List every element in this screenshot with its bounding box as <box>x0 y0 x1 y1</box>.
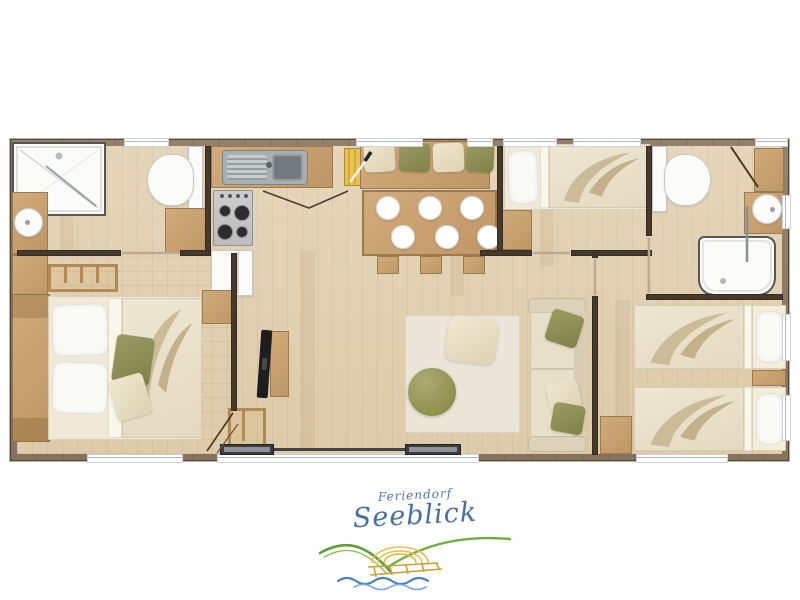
logo-lake-graphic <box>310 533 520 591</box>
door-panel-glass <box>224 447 270 452</box>
toilet-bowl <box>147 154 194 206</box>
basket-divider <box>242 411 245 441</box>
stool <box>377 256 399 274</box>
sofa-cushion <box>550 401 587 435</box>
wall-bedroom-left <box>17 250 121 256</box>
bed-pillow <box>756 311 783 363</box>
sheet-fold <box>744 305 752 369</box>
sheet-fold <box>540 146 549 208</box>
window <box>504 139 556 146</box>
fridge-door-line <box>237 252 239 294</box>
logo: Feriendorf Seeblick <box>300 488 530 588</box>
window <box>637 455 727 462</box>
basin-drain <box>770 207 775 212</box>
wall-bedroom-single <box>480 250 532 256</box>
bench-cushion <box>363 142 395 173</box>
sliding-door-panel <box>220 444 274 455</box>
twin-bed-top-duvet <box>634 305 744 369</box>
headboard-shelf <box>12 294 50 442</box>
bedroom-cabinet <box>500 210 532 250</box>
wardrobe <box>202 290 232 324</box>
towel-shelf <box>48 264 118 292</box>
twin-bedroom-cabinet <box>600 416 632 454</box>
shower-drain <box>720 278 726 284</box>
toilet-bowl <box>664 154 711 206</box>
duvet-leaf-motif <box>634 305 744 369</box>
bedside-nook <box>12 418 50 442</box>
floor-plank <box>300 250 315 450</box>
bed-pillow <box>51 361 109 415</box>
wall-twin-bedroom <box>592 253 598 258</box>
bench-cushion <box>399 142 431 172</box>
sink-drainer <box>227 155 267 180</box>
duvet-leaf-motif <box>549 146 649 208</box>
sheet-fold <box>744 387 752 451</box>
sliding-door-glass <box>218 455 478 462</box>
bench-cushion <box>433 142 465 172</box>
tv-stand <box>270 331 289 397</box>
wall-bedroom-left <box>180 250 211 256</box>
twin-bed-bottom-duvet <box>634 387 744 451</box>
wall-bathroom-right-south <box>646 294 783 300</box>
window <box>357 139 422 146</box>
shelf-divider <box>96 267 99 283</box>
window <box>468 139 492 146</box>
round-pouf <box>408 368 456 416</box>
door-panel-glass <box>409 447 457 452</box>
plate <box>376 196 400 220</box>
kitchen-sink-unit <box>222 150 308 185</box>
wall-bedroom-left-east <box>231 253 237 411</box>
sliding-door-panel <box>405 444 461 455</box>
bedside-nook <box>12 294 50 318</box>
duvet-leaf-motif <box>634 387 744 451</box>
plate <box>418 196 442 220</box>
window <box>574 139 640 146</box>
stool <box>463 256 485 274</box>
bed-pillow <box>756 393 783 445</box>
window <box>783 396 790 440</box>
shower-tray <box>698 236 776 296</box>
wall-bathroom-left <box>205 146 211 256</box>
bathroom-wall-cabinet <box>754 148 784 192</box>
floorplan-image: Feriendorf Seeblick <box>0 0 800 600</box>
shower-tray-inner <box>702 240 772 292</box>
single-bed-duvet <box>549 146 649 208</box>
window <box>783 196 790 228</box>
sliding-door-track <box>274 448 405 451</box>
sink-basin <box>272 154 303 181</box>
drawer-unit <box>12 255 48 299</box>
window <box>783 315 790 360</box>
wall-twin-bedroom <box>592 296 598 455</box>
plate <box>435 225 459 249</box>
wall-bathroom-right <box>646 146 652 236</box>
round-basin <box>752 194 782 224</box>
basin-drain <box>25 220 30 225</box>
square-pouf <box>444 314 499 366</box>
window <box>88 455 182 462</box>
plate <box>460 196 484 220</box>
sofa-armrest <box>528 436 586 452</box>
shelf-divider <box>80 267 83 283</box>
stool <box>420 256 442 274</box>
bed-pillow <box>507 149 539 204</box>
wall-bedroom-single <box>571 250 652 256</box>
wall-dining-bedroom <box>497 146 503 256</box>
hob-burners <box>213 190 253 246</box>
bench-cushion <box>465 142 494 172</box>
hob <box>213 190 253 246</box>
tv-mount <box>262 358 268 370</box>
shelf-divider <box>64 267 67 283</box>
plate <box>391 225 415 249</box>
nightstand <box>752 370 786 386</box>
faucet <box>266 162 272 168</box>
bed-pillow <box>51 303 109 357</box>
window <box>756 139 787 146</box>
window <box>125 139 168 146</box>
